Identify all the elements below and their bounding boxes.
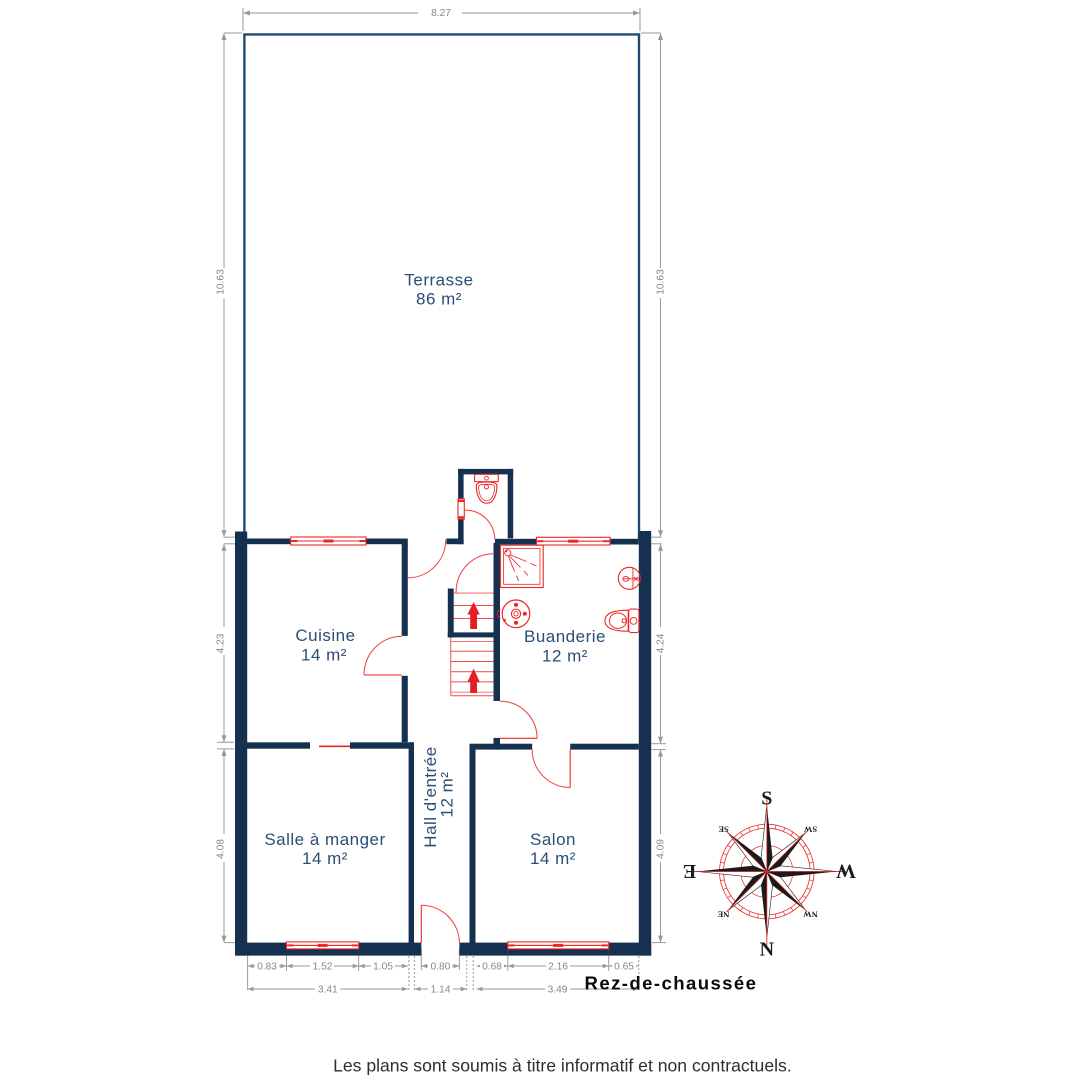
svg-text:Buanderie: Buanderie xyxy=(524,627,606,646)
svg-text:86 m²: 86 m² xyxy=(416,290,462,309)
svg-text:12 m²: 12 m² xyxy=(438,772,457,818)
svg-text:Cuisine: Cuisine xyxy=(295,626,355,645)
svg-text:0.83: 0.83 xyxy=(257,962,277,973)
svg-text:8.27: 8.27 xyxy=(431,8,451,19)
svg-text:S: S xyxy=(761,788,772,810)
svg-text:4.24: 4.24 xyxy=(656,633,667,653)
svg-text:3.41: 3.41 xyxy=(318,985,338,996)
svg-text:NE: NE xyxy=(717,910,729,920)
svg-text:0.80: 0.80 xyxy=(430,962,450,973)
svg-text:12 m²: 12 m² xyxy=(542,647,588,666)
svg-text:2.16: 2.16 xyxy=(548,962,568,973)
svg-text:3.49: 3.49 xyxy=(548,985,568,996)
svg-text:N: N xyxy=(760,938,775,960)
svg-text:4.09: 4.09 xyxy=(656,839,667,859)
svg-text:14 m²: 14 m² xyxy=(530,849,576,868)
svg-text:4.08: 4.08 xyxy=(216,839,227,859)
svg-text:E: E xyxy=(683,860,696,882)
svg-text:Salon: Salon xyxy=(530,830,576,849)
svg-text:0.65: 0.65 xyxy=(614,962,634,973)
svg-text:0.68: 0.68 xyxy=(482,962,502,973)
svg-text:14 m²: 14 m² xyxy=(302,849,348,868)
svg-text:Salle à manger: Salle à manger xyxy=(264,830,385,849)
svg-text:SE: SE xyxy=(718,825,729,835)
svg-text:W: W xyxy=(836,860,856,882)
svg-text:Les plans sont soumis à titre: Les plans sont soumis à titre informatif… xyxy=(333,1056,792,1076)
svg-text:1.14: 1.14 xyxy=(431,985,451,996)
svg-text:4.23: 4.23 xyxy=(216,633,227,653)
svg-text:Terrasse: Terrasse xyxy=(404,271,473,290)
svg-text:1.05: 1.05 xyxy=(373,962,393,973)
svg-text:10.63: 10.63 xyxy=(656,269,667,295)
svg-text:1.52: 1.52 xyxy=(313,962,333,973)
svg-text:Rez-de-chaussée: Rez-de-chaussée xyxy=(585,973,758,994)
svg-text:SW: SW xyxy=(803,825,817,835)
svg-text:10.63: 10.63 xyxy=(216,269,227,295)
svg-text:14 m²: 14 m² xyxy=(301,646,347,665)
svg-text:NW: NW xyxy=(803,910,818,920)
